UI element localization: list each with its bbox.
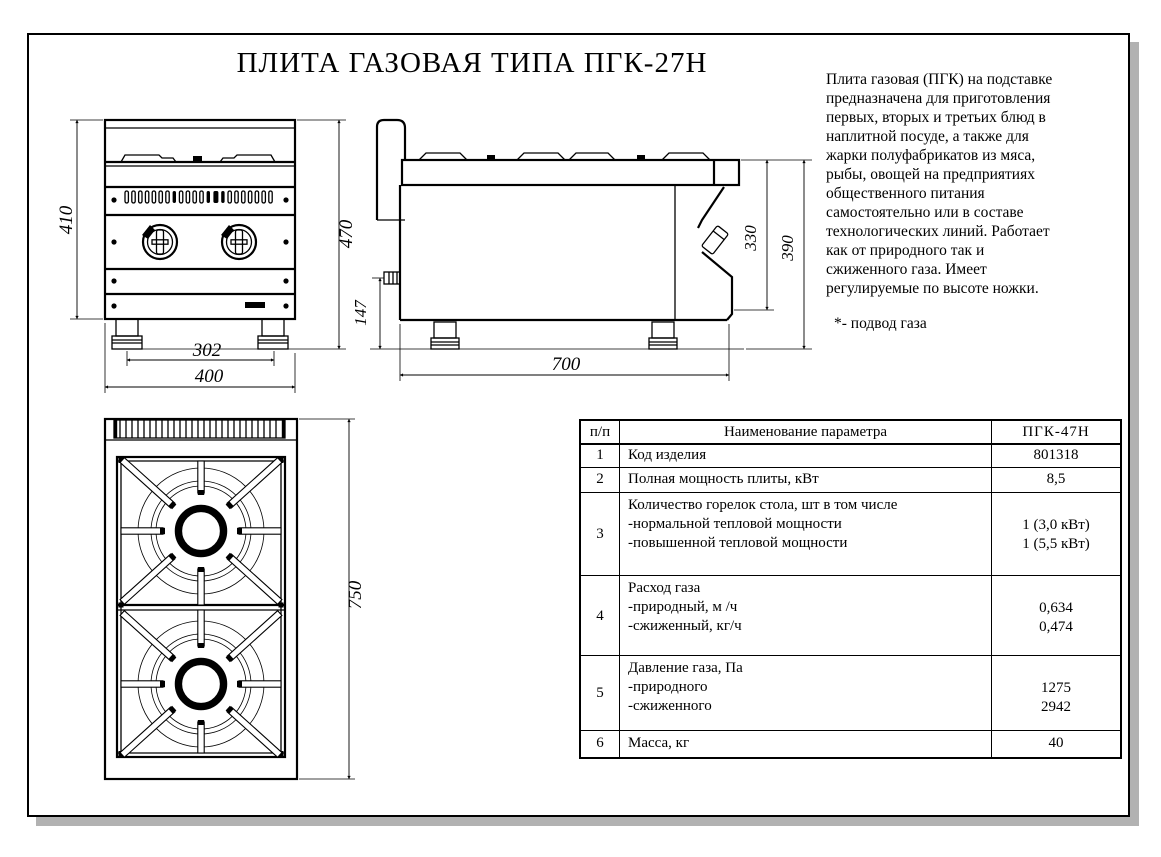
burner-knob-left-icon xyxy=(142,225,177,259)
gas-inlet-icon xyxy=(384,272,400,284)
row-value: 0,634 0,474 xyxy=(992,575,1122,655)
stove-body-front xyxy=(105,120,295,319)
header-model: ПГК-47Н xyxy=(992,420,1122,444)
row-value-line: 1 (5,5 кВт) xyxy=(993,535,1119,554)
description-line: как от природного так и xyxy=(826,241,1136,260)
description-line: регулируемые по высоте ножки. xyxy=(826,279,1136,298)
row-name: Количество горелок стола, шт в том числе… xyxy=(620,492,992,575)
description-line: жарки полуфабрикатов из мяса, xyxy=(826,146,1136,165)
description-text: Плита газовая (ПГК) на подставке предназ… xyxy=(826,70,1136,298)
row-name-line: Количество горелок стола, шт в том числе xyxy=(628,496,990,515)
description-line: технологических линий. Работает xyxy=(826,222,1136,241)
row-name-line: -природный, м /ч xyxy=(628,598,990,617)
row-value-line: 1275 xyxy=(993,659,1119,698)
side-foot-left xyxy=(431,322,459,349)
page: ПЛИТА ГАЗОВАЯ ТИПА ПГК-27Н xyxy=(0,0,1161,857)
dim-side-panel-height: 330 xyxy=(741,225,760,252)
description-line: общественного питания xyxy=(826,184,1136,203)
description-line: наплитной посуде, а также для xyxy=(826,127,1136,146)
row-value: 40 xyxy=(992,730,1122,758)
dim-side-height-total: 390 xyxy=(778,235,797,262)
row-name-line: -нормальной тепловой мощности xyxy=(628,515,990,534)
row-name-line: -повышенной тепловой мощности xyxy=(628,534,990,553)
description-line: первых, вторых и третьих блюд в xyxy=(826,108,1136,127)
row-value-line: 0,634 xyxy=(993,579,1119,618)
table-row: 1 Код изделия 801318 xyxy=(580,444,1121,467)
header-num: п/п xyxy=(580,420,620,444)
row-name: Полная мощность плиты, кВт xyxy=(620,467,992,492)
row-value-line: 1 (3,0 кВт) xyxy=(993,496,1119,535)
row-name-line: Давление газа, Па xyxy=(628,659,990,678)
row-num: 6 xyxy=(580,730,620,758)
burner-knob-right-icon xyxy=(221,225,256,259)
row-num: 1 xyxy=(580,444,620,467)
burner-top-2 xyxy=(120,610,282,757)
row-name: Масса, кг xyxy=(620,730,992,758)
description-line: Плита газовая (ПГК) на подставке xyxy=(826,70,1136,89)
dim-side-gas-height: 147 xyxy=(352,299,370,326)
spec-table-container: п/п Наименование параметра ПГК-47Н 1 Код… xyxy=(579,419,1122,759)
row-name: Давление газа, Па -природного -сжиженног… xyxy=(620,655,992,730)
side-knob-icon xyxy=(701,225,728,254)
side-view-drawing: 147 330 390 700 xyxy=(352,102,827,402)
control-panel-slope xyxy=(698,187,732,320)
spec-table: п/п Наименование параметра ПГК-47Н 1 Код… xyxy=(579,419,1122,759)
front-view-drawing: 410 470 302 400 xyxy=(57,110,367,410)
dim-top-depth: 750 xyxy=(345,580,366,609)
side-foot-right xyxy=(649,322,677,349)
table-row: 6 Масса, кг 40 xyxy=(580,730,1121,758)
row-value: 8,5 xyxy=(992,467,1122,492)
dim-side-depth: 700 xyxy=(552,354,581,375)
dim-front-width-total: 400 xyxy=(195,366,224,387)
row-value-line: 2942 xyxy=(993,698,1119,717)
row-name: Расход газа -природный, м /ч -сжиженный,… xyxy=(620,575,992,655)
row-name: Код изделия xyxy=(620,444,992,467)
foot-right xyxy=(258,319,288,349)
row-value: 1275 2942 xyxy=(992,655,1122,730)
row-num: 4 xyxy=(580,575,620,655)
table-row: 5 Давление газа, Па -природного -сжиженн… xyxy=(580,655,1121,730)
dim-front-width-feet: 302 xyxy=(192,340,222,361)
row-num: 5 xyxy=(580,655,620,730)
foot-left xyxy=(112,319,142,349)
row-name-line: -природного xyxy=(628,678,990,697)
table-header-row: п/п Наименование параметра ПГК-47Н xyxy=(580,420,1121,444)
description-line: предназначена для приготовления xyxy=(826,89,1136,108)
description-line: рыбы, овощей на предприятиях xyxy=(826,165,1136,184)
page-title: ПЛИТА ГАЗОВАЯ ТИПА ПГК-27Н xyxy=(172,47,772,80)
row-num: 3 xyxy=(580,492,620,575)
row-name-line: -сжиженный, кг/ч xyxy=(628,617,990,636)
table-row: 2 Полная мощность плиты, кВт 8,5 xyxy=(580,467,1121,492)
dim-front-height-body: 410 xyxy=(57,205,77,234)
row-name-line: -сжиженного xyxy=(628,697,990,716)
header-name: Наименование параметра xyxy=(620,420,992,444)
brand-badge xyxy=(245,302,265,308)
burner-top-1 xyxy=(120,458,282,605)
table-row: 3 Количество горелок стола, шт в том чис… xyxy=(580,492,1121,575)
worktop-side xyxy=(402,160,739,185)
top-view-drawing: 750 xyxy=(82,407,402,797)
gas-supply-note: *- подвод газа xyxy=(834,315,927,333)
row-num: 2 xyxy=(580,467,620,492)
vent-grille xyxy=(125,191,272,203)
rear-grille xyxy=(114,420,285,438)
row-name-line: Расход газа xyxy=(628,579,990,598)
row-value: 801318 xyxy=(992,444,1122,467)
description-line: самостоятельно или в составе xyxy=(826,203,1136,222)
row-value: 1 (3,0 кВт) 1 (5,5 кВт) xyxy=(992,492,1122,575)
description-line: сжиженного газа. Имеет xyxy=(826,260,1136,279)
grate-frame xyxy=(117,457,285,757)
table-row: 4 Расход газа -природный, м /ч -сжиженны… xyxy=(580,575,1121,655)
drawing-sheet: ПЛИТА ГАЗОВАЯ ТИПА ПГК-27Н xyxy=(27,33,1130,817)
row-value-line: 0,474 xyxy=(993,618,1119,637)
